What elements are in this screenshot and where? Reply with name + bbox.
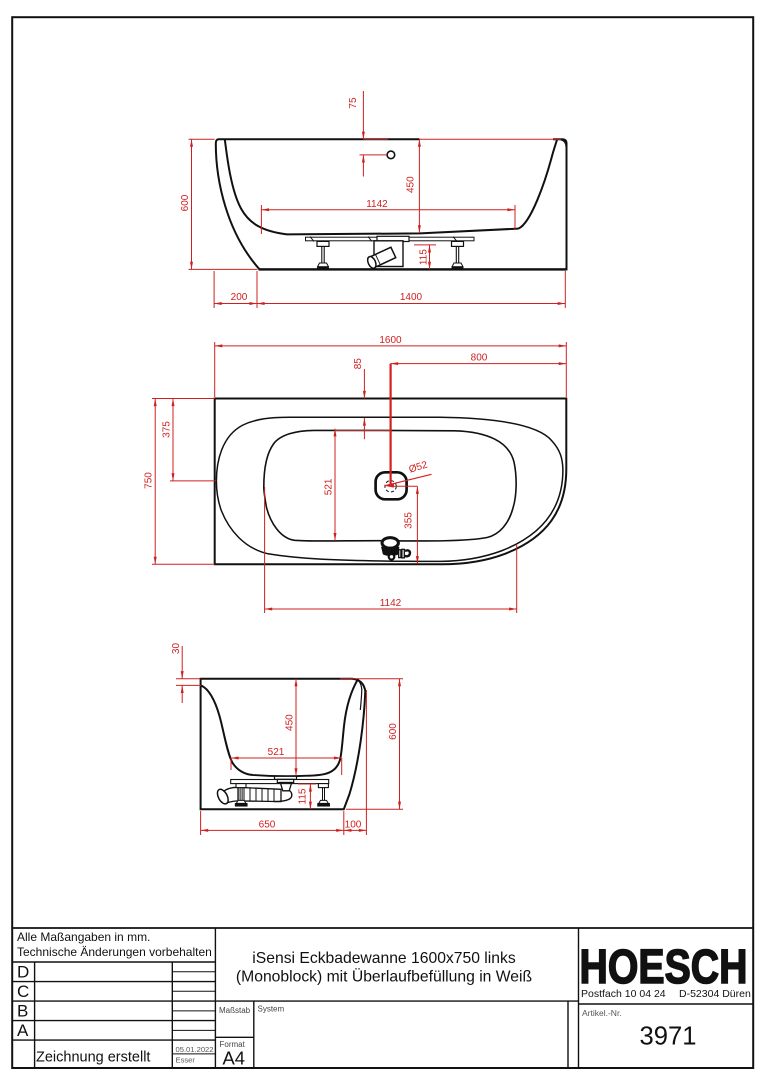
svg-text:600: 600 <box>388 723 399 740</box>
svg-text:115: 115 <box>297 788 308 804</box>
svg-text:375: 375 <box>162 421 173 438</box>
svg-text:450: 450 <box>406 176 417 193</box>
svg-text:1142: 1142 <box>380 598 402 609</box>
svg-text:Alle Maßangaben in mm.: Alle Maßangaben in mm. <box>17 930 150 944</box>
svg-text:Maßstab: Maßstab <box>219 1006 251 1015</box>
svg-text:B: B <box>17 1002 28 1021</box>
svg-text:85: 85 <box>353 358 364 370</box>
svg-text:650: 650 <box>259 819 276 830</box>
svg-text:30: 30 <box>171 643 182 655</box>
svg-text:800: 800 <box>471 353 488 364</box>
svg-text:1142: 1142 <box>366 199 388 210</box>
svg-text:A: A <box>17 1021 29 1040</box>
svg-text:Technische Änderungen vorbehal: Technische Änderungen vorbehalten <box>17 945 212 959</box>
svg-text:D: D <box>17 963 29 982</box>
svg-text:450: 450 <box>285 714 296 731</box>
svg-text:750: 750 <box>144 472 155 489</box>
svg-text:521: 521 <box>268 747 285 758</box>
svg-text:iSensi Eckbadewanne 1600x750 l: iSensi Eckbadewanne 1600x750 links <box>252 950 516 967</box>
svg-text:System: System <box>258 1005 285 1014</box>
svg-text:355: 355 <box>404 512 415 529</box>
svg-text:A4: A4 <box>223 1048 246 1069</box>
svg-text:Esser: Esser <box>176 1056 196 1065</box>
svg-text:115: 115 <box>419 249 430 265</box>
svg-text:200: 200 <box>231 292 248 303</box>
svg-text:1400: 1400 <box>400 292 423 303</box>
svg-text:Zeichnung erstellt: Zeichnung erstellt <box>36 1050 150 1066</box>
svg-text:521: 521 <box>324 478 335 495</box>
svg-text:Artikel.-Nr.: Artikel.-Nr. <box>582 1008 622 1018</box>
svg-text:Postfach 10 04 24: Postfach 10 04 24 <box>581 988 666 1000</box>
svg-text:75: 75 <box>348 97 359 109</box>
svg-text:(Monoblock) mit Überlaufbefüll: (Monoblock) mit Überlaufbefüllung in Wei… <box>236 968 532 986</box>
svg-text:D-52304 Düren: D-52304 Düren <box>679 988 751 1000</box>
svg-text:05.01.2022: 05.01.2022 <box>176 1045 214 1054</box>
svg-text:100: 100 <box>345 819 362 830</box>
svg-text:1600: 1600 <box>379 335 402 346</box>
svg-text:600: 600 <box>180 194 191 211</box>
svg-text:C: C <box>17 982 29 1001</box>
svg-text:3971: 3971 <box>640 1023 697 1051</box>
svg-text:HOESCH: HOESCH <box>580 941 748 994</box>
